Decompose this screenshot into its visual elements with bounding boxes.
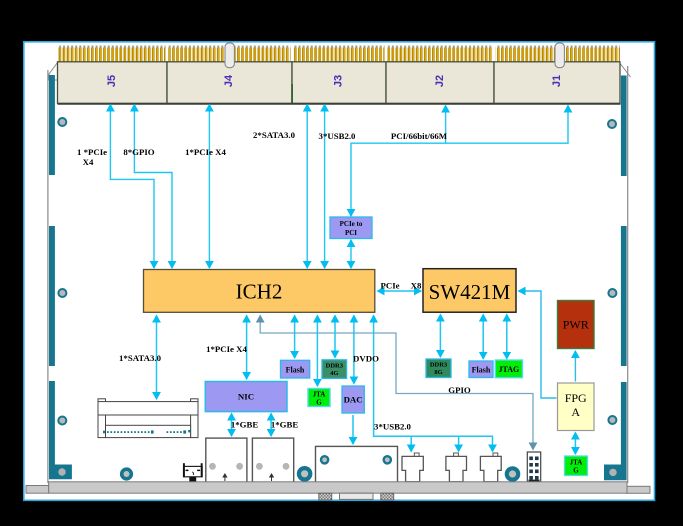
svg-text:NIC: NIC [238, 392, 254, 402]
svg-text:FPG: FPG [565, 391, 587, 405]
svg-text:J4: J4 [223, 74, 235, 87]
svg-text:JTA: JTA [313, 391, 326, 399]
svg-text:2*SATA3.0: 2*SATA3.0 [253, 130, 296, 140]
svg-text:J1: J1 [551, 75, 563, 87]
svg-text:PCI: PCI [345, 229, 357, 237]
svg-text:3*USB2.0: 3*USB2.0 [319, 131, 357, 141]
svg-text:G: G [316, 399, 322, 407]
svg-text:1*GBE: 1*GBE [231, 420, 259, 430]
svg-text:PCIe to: PCIe to [340, 220, 363, 228]
svg-text:PCIe: PCIe [380, 281, 399, 291]
svg-text:DAC: DAC [344, 395, 363, 405]
svg-text:J5: J5 [106, 75, 118, 87]
svg-text:PWR: PWR [563, 318, 589, 332]
svg-text:J3: J3 [333, 75, 345, 87]
svg-text:JTAG: JTAG [499, 365, 520, 374]
svg-text:1 *PCIe: 1 *PCIe [77, 147, 107, 157]
svg-text:Flash: Flash [286, 366, 305, 375]
svg-text:DDR3: DDR3 [326, 363, 344, 370]
svg-text:8G: 8G [434, 369, 442, 376]
svg-text:ICH2: ICH2 [236, 280, 283, 304]
svg-text:Flash: Flash [472, 366, 491, 375]
svg-text:DVDO: DVDO [353, 354, 379, 364]
svg-text:1*SATA3.0: 1*SATA3.0 [119, 353, 162, 363]
svg-text:X8: X8 [411, 281, 422, 291]
svg-text:3*USB2.0: 3*USB2.0 [374, 422, 412, 432]
svg-text:A: A [571, 405, 580, 419]
svg-text:1*PCIe X4: 1*PCIe X4 [185, 147, 226, 157]
svg-text:PCI/66bit/66M: PCI/66bit/66M [391, 131, 448, 141]
svg-text:J2: J2 [434, 75, 446, 87]
svg-text:SW421M: SW421M [429, 280, 511, 304]
svg-text:X4: X4 [83, 157, 94, 167]
svg-text:GPIO: GPIO [448, 385, 471, 395]
svg-text:DDR3: DDR3 [430, 362, 448, 369]
svg-text:1*PCIe X4: 1*PCIe X4 [206, 344, 247, 354]
svg-text:4G: 4G [330, 370, 338, 377]
svg-text:G: G [573, 467, 579, 475]
svg-text:1*GBE: 1*GBE [271, 420, 299, 430]
svg-text:JTA: JTA [570, 459, 583, 467]
svg-text:8*GPIO: 8*GPIO [123, 147, 154, 157]
